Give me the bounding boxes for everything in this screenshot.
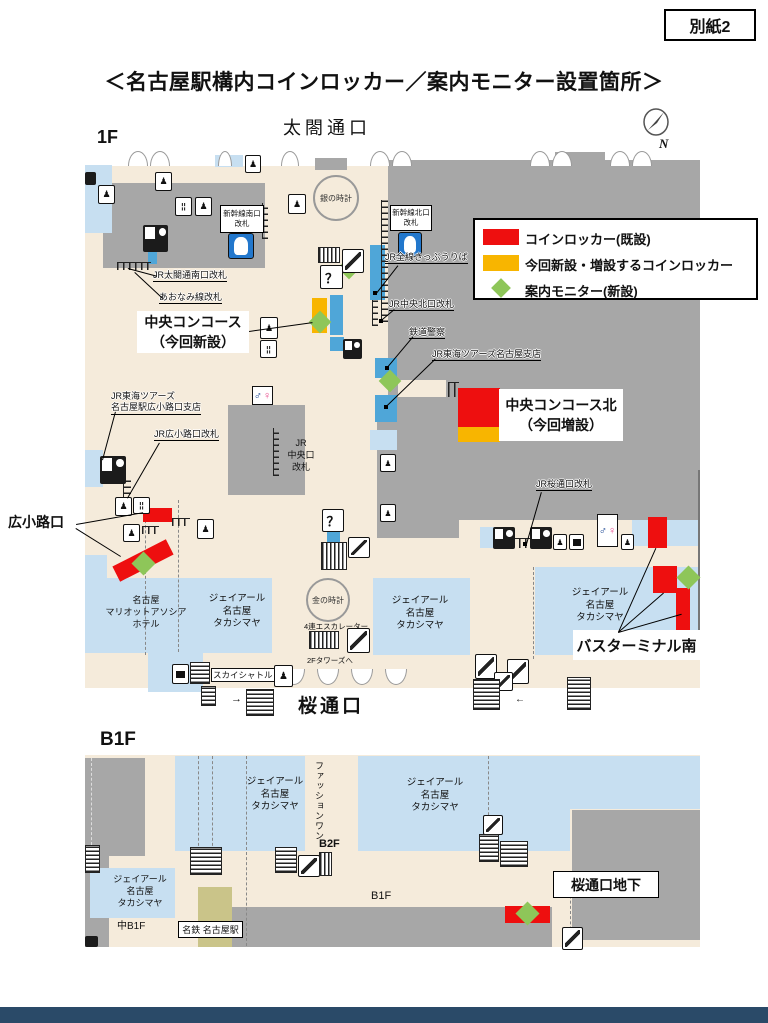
ticket-machine-icon	[85, 936, 98, 947]
legend: コインロッカー(既設) 今回新設・増設するコインロッカー 案内モニター(新設)	[473, 218, 758, 300]
elevator-icon: ♟	[98, 185, 115, 204]
b1-takashimaya-label-2: ジェイアール 名古屋 タカシマヤ	[393, 774, 477, 818]
central-gate-line1: JR	[296, 437, 307, 449]
aonami-gate-label: あおなみ線改札	[159, 292, 222, 304]
takashimaya-line: ジェイアール	[247, 776, 303, 789]
male-glyph: ♂	[254, 390, 262, 402]
person-glyph: ♟	[127, 528, 135, 539]
ticket-machine-icon	[85, 172, 96, 185]
central-concourse-note-line2: （今回新設）	[151, 332, 235, 352]
gold-clock: 金の時計	[306, 578, 350, 622]
takashimaya-line: 名古屋	[586, 600, 615, 613]
elevator-icon: ♟	[115, 497, 132, 516]
takashimaya-line: タカシマヤ	[213, 618, 261, 631]
takashimaya-label-1: ジェイアール 名古屋 タカシマヤ	[195, 591, 279, 633]
fashion-one-label: ファッションワン	[313, 761, 326, 847]
elevator-icon: ♟	[245, 155, 261, 173]
silver-clock: 銀の時計	[313, 175, 359, 221]
b1-structure	[232, 907, 552, 947]
elevator-icon: ♟	[553, 534, 567, 550]
takashimaya-line: タカシマヤ	[396, 620, 444, 633]
person-glyph: ♟	[279, 671, 288, 682]
person-glyph: ♟	[293, 199, 301, 210]
marriott-line1: 名古屋	[132, 594, 159, 606]
door-arc	[128, 151, 148, 166]
leader-dot	[385, 366, 389, 370]
tours-hirokoji-line1: JR東海ツアーズ	[111, 391, 201, 402]
female-glyph: ♀	[263, 390, 271, 402]
leader-dot	[379, 319, 383, 323]
compass-icon	[638, 106, 674, 142]
guide-line	[91, 758, 92, 850]
stairs-icon	[190, 847, 222, 875]
leader-dot	[523, 542, 527, 546]
question-glyph: ？	[326, 511, 339, 530]
door-arc	[530, 151, 550, 166]
central-gate-label: JR 中央口 改札	[278, 433, 324, 477]
information-icon: ？	[322, 509, 344, 532]
sakuradori-exit-label: 桜通口	[298, 691, 364, 718]
taiko-south-gate-label: JR太閤通南口改札	[153, 270, 227, 282]
sakuradori-gate-label: JR桜通口改札	[536, 479, 592, 491]
attachment-label: 別紙2	[664, 9, 756, 41]
tours-hirokoji-line2: 名古屋駅広小路口支店	[111, 402, 201, 413]
gate-ticks	[172, 518, 190, 526]
b1-takashimaya-label-3: ジェイアール 名古屋 タカシマヤ	[98, 872, 182, 910]
door-arc	[632, 151, 652, 166]
elevator-icon: ♟	[195, 197, 212, 216]
ticket-gate-icon	[493, 527, 515, 549]
locker-existing-central-north	[458, 388, 500, 427]
takashimaya-line: タカシマヤ	[576, 612, 624, 625]
meitetsu-station-label: 名鉄 名古屋駅	[178, 921, 243, 938]
to-towers-label: 2Fタワーズへ	[307, 655, 353, 666]
guide-line	[212, 756, 213, 851]
footer-bar	[0, 1007, 768, 1023]
stairs-icon	[319, 852, 332, 876]
stairs-icon	[201, 686, 216, 706]
taiko-exit-label: 太閤通口	[283, 114, 371, 140]
takashimaya-line: ジェイアール	[392, 595, 448, 608]
male-glyph: ♂	[599, 525, 607, 537]
info-bar	[327, 532, 340, 542]
b1f-inner-label: B1F	[371, 890, 391, 902]
question-glyph: ？	[325, 268, 338, 287]
marriott-label: 名古屋 マリオットアソシア ホテル	[105, 591, 187, 633]
locker-existing-bus-3	[676, 588, 690, 630]
door-arc	[218, 151, 232, 166]
b1-takashimaya-label-1: ジェイアール 名古屋 タカシマヤ	[233, 773, 317, 817]
elevator-icon: ♟	[288, 194, 306, 214]
takashimaya-line: 名古屋	[126, 885, 153, 897]
person-glyph: ♟	[624, 538, 631, 547]
elevator-icon: ♟	[621, 534, 634, 550]
female-glyph: ♀	[608, 525, 616, 537]
restroom-icon: ♂♀	[597, 514, 618, 547]
central-north-note: 中央コンコース北 （今回増設）	[499, 389, 623, 441]
leader-dot	[373, 291, 377, 295]
legend-monitor-swatch	[491, 278, 511, 298]
monitor-glyph	[176, 671, 185, 678]
person-glyph: ♟	[384, 459, 391, 468]
legend-new-swatch	[483, 255, 519, 271]
floorB1-label: B1F	[100, 729, 136, 751]
ticket-gate-icon	[143, 225, 168, 252]
escalator-icon	[348, 537, 370, 558]
person-glyph: ♟	[249, 159, 257, 170]
stairs-icon	[190, 662, 210, 684]
central-north-gate-label: JR中央北口改札	[389, 299, 454, 311]
floorB1-map: ジェイアール 名古屋 タカシマヤ ジェイアール 名古屋 タカシマヤ ジェイアール…	[85, 755, 700, 985]
marriott-line3: ホテル	[132, 618, 159, 630]
ticket-gate-icon	[530, 527, 552, 549]
legend-existing-label: コインロッカー(既設)	[525, 229, 651, 248]
door-arc	[281, 151, 299, 166]
bus-terminal-note-text: バスターミナル南	[576, 635, 696, 656]
jr-tokai-tours-label: JR東海ツアーズ名古屋支店	[432, 349, 541, 361]
central-concourse-note-line1: 中央コンコース	[144, 312, 241, 332]
b2f-label: B2F	[319, 838, 340, 850]
silver-clock-label: 銀の時計	[320, 193, 352, 204]
elevator-icon: ♟	[274, 665, 293, 687]
fork-glyph: ¦¦	[266, 345, 270, 354]
door-arc	[150, 151, 170, 166]
monitor-icon	[569, 534, 584, 550]
takashimaya-line: タカシマヤ	[251, 801, 299, 814]
gate-ticks	[142, 526, 159, 534]
b1-structure	[109, 758, 145, 856]
stairs-icon	[85, 845, 100, 873]
stairs-icon	[567, 677, 591, 710]
central-gate-line2: 中央口	[287, 449, 314, 461]
takashimaya-line: ジェイアール	[113, 873, 166, 885]
arrow-left-icon: ←	[515, 694, 525, 705]
fork-glyph: ¦¦	[181, 202, 185, 211]
escalator-icon	[298, 855, 320, 877]
restaurant-icon: ¦¦	[175, 197, 192, 216]
fork-glyph: ¦¦	[139, 501, 143, 510]
takashimaya-line: 名古屋	[421, 790, 450, 803]
ticket-gate-icon	[343, 339, 362, 359]
takashimaya-line: ジェイアール	[209, 593, 265, 606]
central-concourse-note: 中央コンコース （今回新設）	[137, 311, 249, 353]
leader-dot	[384, 405, 388, 409]
ticket-office-label: JR全線きっぷうりば	[385, 252, 468, 264]
legend-new-label: 今回新設・増設するコインロッカー	[525, 255, 733, 274]
takashimaya-line: タカシマヤ	[411, 802, 459, 815]
person-glyph: ♟	[201, 524, 209, 535]
locker-existing-bus-2	[653, 566, 677, 593]
takashimaya-line: 名古屋	[223, 606, 252, 619]
monitor-icon	[172, 664, 189, 684]
elevator-icon: ♟	[197, 519, 214, 539]
stairs-icon	[246, 689, 274, 716]
stairs-icon	[473, 679, 500, 710]
central-north-note-line1: 中央コンコース北	[505, 395, 616, 415]
sakuradori-underground-label: 桜通口地下	[553, 871, 659, 898]
person-glyph: ♟	[384, 509, 391, 518]
legend-existing-swatch	[483, 229, 519, 245]
hirokoji-gate-label: JR広小路口改札	[154, 429, 219, 441]
central-gate-line3: 改札	[292, 461, 310, 473]
railway-police-label: 鉄道警察	[409, 327, 445, 339]
aonami-train-icon	[228, 233, 254, 259]
gold-clock-label: 金の時計	[312, 595, 344, 606]
takashimaya-line: 名古屋	[406, 608, 435, 621]
takashimaya-line: ジェイアール	[572, 587, 628, 600]
concourse-bar	[330, 295, 343, 335]
stairs-icon	[500, 841, 528, 867]
guide-line	[533, 567, 534, 659]
takashimaya-label-2: ジェイアール 名古屋 タカシマヤ	[378, 593, 462, 635]
person-glyph: ♟	[119, 501, 127, 512]
restroom-icon: ♂♀	[252, 386, 273, 405]
floor1-label: 1F	[97, 127, 118, 148]
store-block	[370, 430, 397, 450]
person-glyph: ♟	[556, 538, 563, 547]
hirokoji-exit-label: 広小路口	[8, 512, 64, 532]
central-north-note-line2: （今回増設）	[519, 415, 603, 435]
wall-segment	[315, 158, 347, 170]
elevator-icon: ♟	[380, 504, 396, 522]
concourse-bar	[330, 337, 344, 351]
escalator-icon	[562, 927, 583, 950]
jr-tokai-tours-hirokoji-label: JR東海ツアーズ 名古屋駅広小路口支店	[111, 391, 201, 415]
person-glyph: ♟	[199, 201, 207, 212]
page-title: ＜名古屋駅構内コインロッカー／案内モニター設置箇所＞	[0, 66, 768, 96]
locker-existing-bus-1	[648, 517, 667, 548]
monitor-glyph	[573, 539, 581, 546]
door-arc	[370, 151, 390, 166]
ticket-gate-icon	[100, 456, 126, 484]
escalator-icon	[483, 815, 503, 835]
stairs-icon	[318, 247, 340, 263]
takashimaya-line: ジェイアール	[407, 777, 463, 790]
person-glyph: ♟	[159, 176, 167, 187]
naka-b1f-label: 中B1F	[117, 917, 145, 932]
information-icon: ？	[320, 265, 343, 289]
station-map-page: 別紙2 ＜名古屋駅構内コインロッカー／案内モニター設置箇所＞ 1F 太閤通口 N	[0, 0, 768, 1023]
bus-terminal-note: バスターミナル南	[573, 630, 700, 660]
legend-monitor-label: 案内モニター(新設)	[525, 281, 638, 300]
stairs-icon	[275, 847, 297, 873]
elevator-icon: ♟	[123, 524, 140, 542]
shinkansen-south-gate-label: 新幹線南口改札	[220, 205, 264, 233]
takashimaya-line: タカシマヤ	[117, 897, 162, 909]
stairs-icon	[321, 542, 347, 570]
escalator-bank-icon	[309, 631, 339, 649]
meitetsu-block	[198, 887, 232, 947]
stairs-icon	[479, 834, 499, 862]
platform-ticks	[372, 300, 378, 326]
store-block	[85, 555, 107, 579]
elevator-icon: ♟	[380, 454, 396, 472]
escalator-icon	[342, 249, 364, 273]
person-glyph: ♟	[102, 189, 110, 200]
door-arc	[392, 151, 412, 166]
escalator-icon	[347, 628, 370, 653]
shinkansen-north-gate-label: 新幹線北口改札	[390, 205, 432, 231]
restaurant-icon: ¦¦	[260, 340, 277, 358]
sky-shuttle-label: スカイシャトル	[211, 668, 275, 682]
corner-arrow-icon: →	[231, 693, 242, 705]
marriott-line2: マリオットアソシア	[105, 606, 186, 618]
door-arc	[610, 151, 630, 166]
locker-new-central-north	[458, 427, 500, 442]
elevator-icon: ♟	[155, 172, 172, 191]
takashimaya-line: 名古屋	[261, 789, 290, 802]
guide-line	[198, 756, 199, 851]
